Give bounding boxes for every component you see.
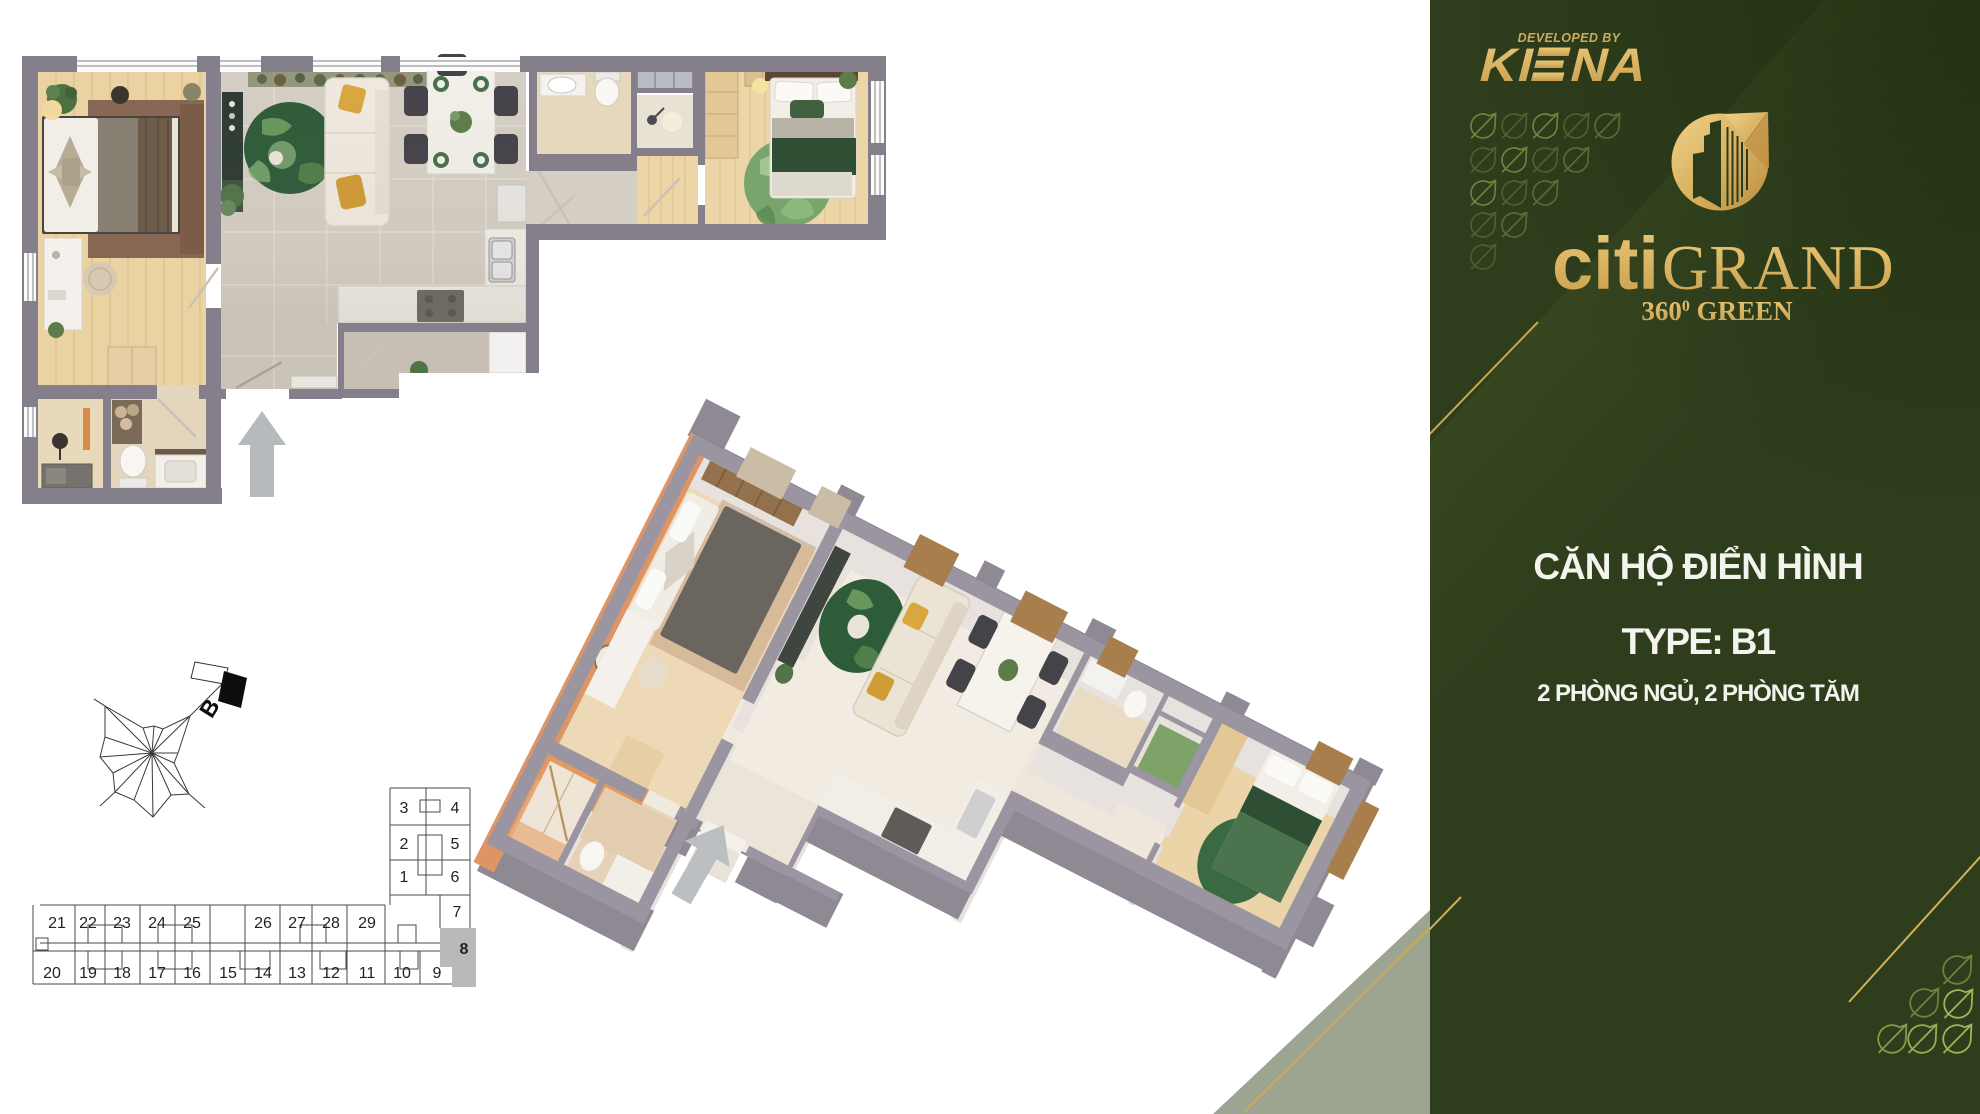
svg-text:13: 13 (288, 965, 306, 982)
svg-text:21: 21 (48, 915, 66, 932)
svg-text:22: 22 (79, 915, 97, 932)
svg-text:3: 3 (400, 800, 409, 817)
svg-text:NA: NA (1565, 38, 1655, 91)
svg-text:10: 10 (393, 965, 411, 982)
svg-text:20: 20 (43, 965, 61, 982)
svg-text:GRAND: GRAND (1662, 232, 1895, 303)
svg-text:27: 27 (288, 915, 306, 932)
svg-text:9: 9 (433, 965, 442, 982)
svg-text:14: 14 (254, 965, 272, 982)
svg-text:8: 8 (460, 941, 469, 958)
svg-text:4: 4 (451, 800, 460, 817)
svg-text:28: 28 (322, 915, 340, 932)
svg-text:7: 7 (453, 904, 462, 921)
svg-text:17: 17 (148, 965, 166, 982)
svg-text:15: 15 (219, 965, 237, 982)
svg-text:29: 29 (358, 915, 376, 932)
svg-text:19: 19 (79, 965, 97, 982)
svg-text:24: 24 (148, 915, 166, 932)
svg-text:25: 25 (183, 915, 201, 932)
svg-text:11: 11 (359, 965, 376, 982)
svg-text:18: 18 (113, 965, 131, 982)
svg-text:2: 2 (400, 836, 409, 853)
svg-text:citi: citi (1552, 222, 1659, 305)
svg-text:23: 23 (113, 915, 131, 932)
svg-text:16: 16 (183, 965, 201, 982)
svg-text:6: 6 (451, 869, 460, 886)
svg-text:3600 GREEN: 3600 GREEN (1641, 296, 1793, 326)
svg-text:12: 12 (322, 965, 340, 982)
svg-text:1: 1 (400, 869, 409, 886)
svg-text:26: 26 (254, 915, 272, 932)
svg-text:5: 5 (451, 836, 460, 853)
